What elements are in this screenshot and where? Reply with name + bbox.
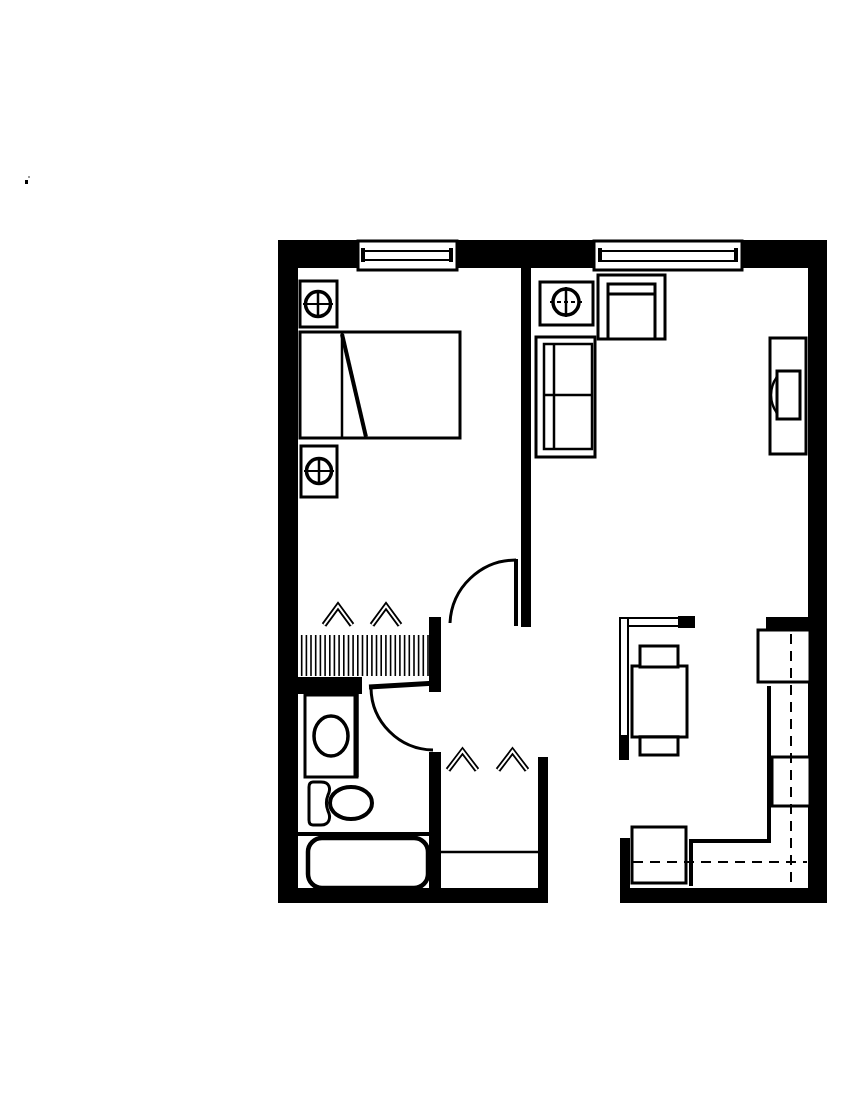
living-window-tick-left <box>598 248 602 262</box>
floorplan-page <box>0 0 850 1100</box>
bed <box>300 332 460 438</box>
bathtub <box>308 838 428 888</box>
hanger-chevron-icon <box>372 606 400 625</box>
hanger-chevron-icon <box>448 751 477 770</box>
bedroom-living-wall <box>521 268 531 627</box>
toilet-bowl <box>330 787 372 819</box>
hanger-chevron-icon <box>324 606 352 625</box>
bedroom-window-tick-left <box>361 248 365 262</box>
tv <box>777 371 800 419</box>
kitchen-north-wall-stub <box>766 617 808 629</box>
bottom-wall-right <box>620 888 827 903</box>
hall-wall-lower <box>429 752 441 903</box>
range <box>632 827 686 883</box>
dining-chair-south <box>640 737 678 755</box>
dining-partition-cap-south <box>619 735 629 760</box>
entry-wall-stub <box>620 838 630 888</box>
floorplan-svg <box>0 0 850 1100</box>
bathroom-north-wall <box>278 677 362 694</box>
sink-cabinet <box>772 757 810 806</box>
toilet-tank <box>309 782 330 825</box>
living-window-tick-right <box>734 248 738 262</box>
hall-closet-right-wall <box>538 757 548 903</box>
hanger-chevron-icon <box>498 751 527 770</box>
dining-chair-north <box>640 646 678 667</box>
bathroom-door-swing <box>371 688 433 750</box>
bedroom-door-swing <box>450 560 516 623</box>
bedroom-window-tick-right <box>449 248 453 262</box>
dining-partition-v <box>620 618 628 738</box>
refrigerator <box>758 630 810 682</box>
bedroom-window-pane <box>364 251 451 260</box>
scan-speck <box>28 176 30 178</box>
dining-partition-cap-east <box>678 616 695 628</box>
left-wall <box>278 240 298 903</box>
scan-speck <box>25 180 28 184</box>
bathroom-door-leaf <box>369 683 437 687</box>
kitchen-counter-edge <box>691 686 769 886</box>
dining-table <box>632 666 687 737</box>
bedroom-closet-hatch <box>297 635 428 676</box>
living-window-pane <box>601 251 736 261</box>
